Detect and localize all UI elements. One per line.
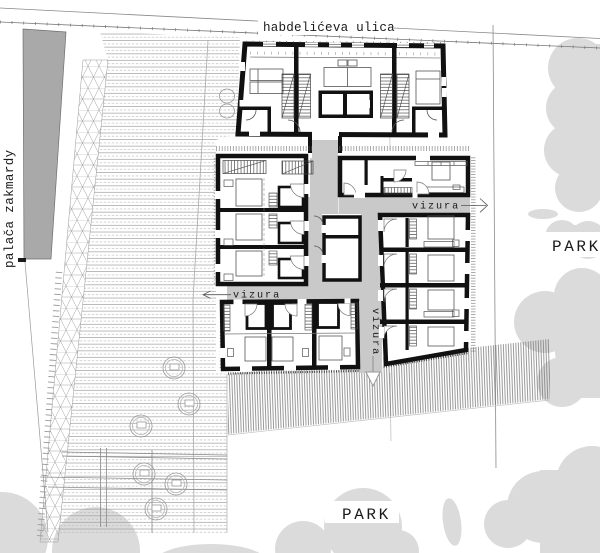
svg-text:vizura: vizura — [412, 201, 460, 213]
svg-text:PARK: PARK — [342, 506, 391, 524]
svg-text:vizura: vizura — [369, 308, 381, 356]
svg-text:palača zakmardy: palača zakmardy — [3, 149, 17, 268]
svg-text:habdelićeva ulica: habdelićeva ulica — [263, 21, 395, 35]
svg-text:vizura: vizura — [233, 290, 281, 302]
svg-text:PARK: PARK — [552, 238, 600, 256]
